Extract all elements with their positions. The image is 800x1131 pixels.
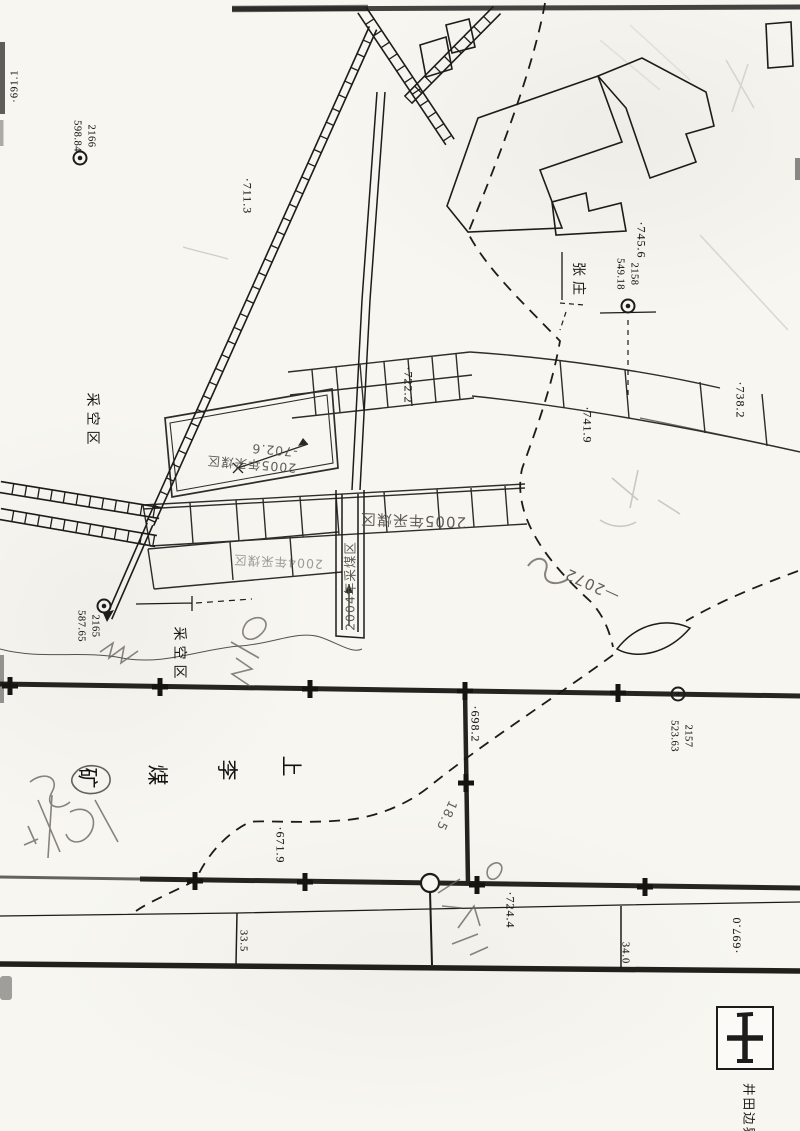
hw-2004-goaf-b: 2004年采煤区 [340,541,359,631]
boundary-junction-circle [421,874,439,892]
place-zhangzhuang: 张庄 [569,262,589,300]
hw-2005-goaf-b: 2005年采煤区 [360,509,467,534]
ladder-symbol [106,523,152,619]
elev-745-6: ·745.6 [634,222,649,259]
village-buildings [420,19,793,300]
goaf-area-2: 采空区 [170,627,190,684]
survey-label-2166: 2166598.84 [70,120,97,152]
boundary-cross [187,872,203,890]
road-thick-line [0,964,800,971]
boundary-cross [458,774,474,792]
goaf-area-1: 采空区 [83,393,103,450]
map-linework [0,0,800,1131]
boundary-cross [637,878,653,896]
boundary-cross [469,876,485,894]
elev-691-1: ·691.1 [10,69,21,102]
survey-label-2165: 2165587.65 [74,610,101,642]
boundary-cross [457,682,473,700]
legend-box [717,1007,773,1069]
boundary-cross [2,677,18,695]
ladder-symbol [404,6,500,103]
legend-caption: 井田边界 [741,1083,760,1131]
elev-724-4: ·724.4 [503,892,518,929]
scanned-mine-map: 井田边界 ·691.12166598.84·711.3·722.2·745.62… [0,0,800,1131]
mine-boundary-lines [0,684,800,888]
survey-label-2157: 2157523.63 [667,720,694,752]
survey-marker-2166 [74,152,87,165]
boundary-cross [297,873,313,891]
boundary-cross [610,684,626,702]
mine-name-li: 李 [213,760,243,781]
mine-name-kuang: 矿 [73,768,103,789]
mine-name-mei: 煤 [143,765,173,786]
thin-lines [0,312,800,968]
elev-671-9: ·671.9 [273,827,288,864]
road-width-34-0: 34.0 [620,942,631,964]
elev-722-2: ·722.2 [401,367,416,404]
elev-698-2: ·698.2 [468,706,483,743]
elev-741-9: ·741.9 [580,407,595,444]
elev-738-2: ·738.2 [733,382,748,419]
elev-711-3: ·711.3 [240,178,255,215]
boundary-cross [152,678,168,696]
road-width-33-5: 33.5 [238,930,249,952]
boundary-cross [302,680,318,698]
survey-label-2158: 2158549.18 [613,258,640,290]
mine-name-shang: 上 [277,756,307,777]
survey-marker-2158 [622,300,635,313]
elev-697-0: ·697.0 [730,917,745,954]
scan-edge-artifacts [0,7,800,1000]
